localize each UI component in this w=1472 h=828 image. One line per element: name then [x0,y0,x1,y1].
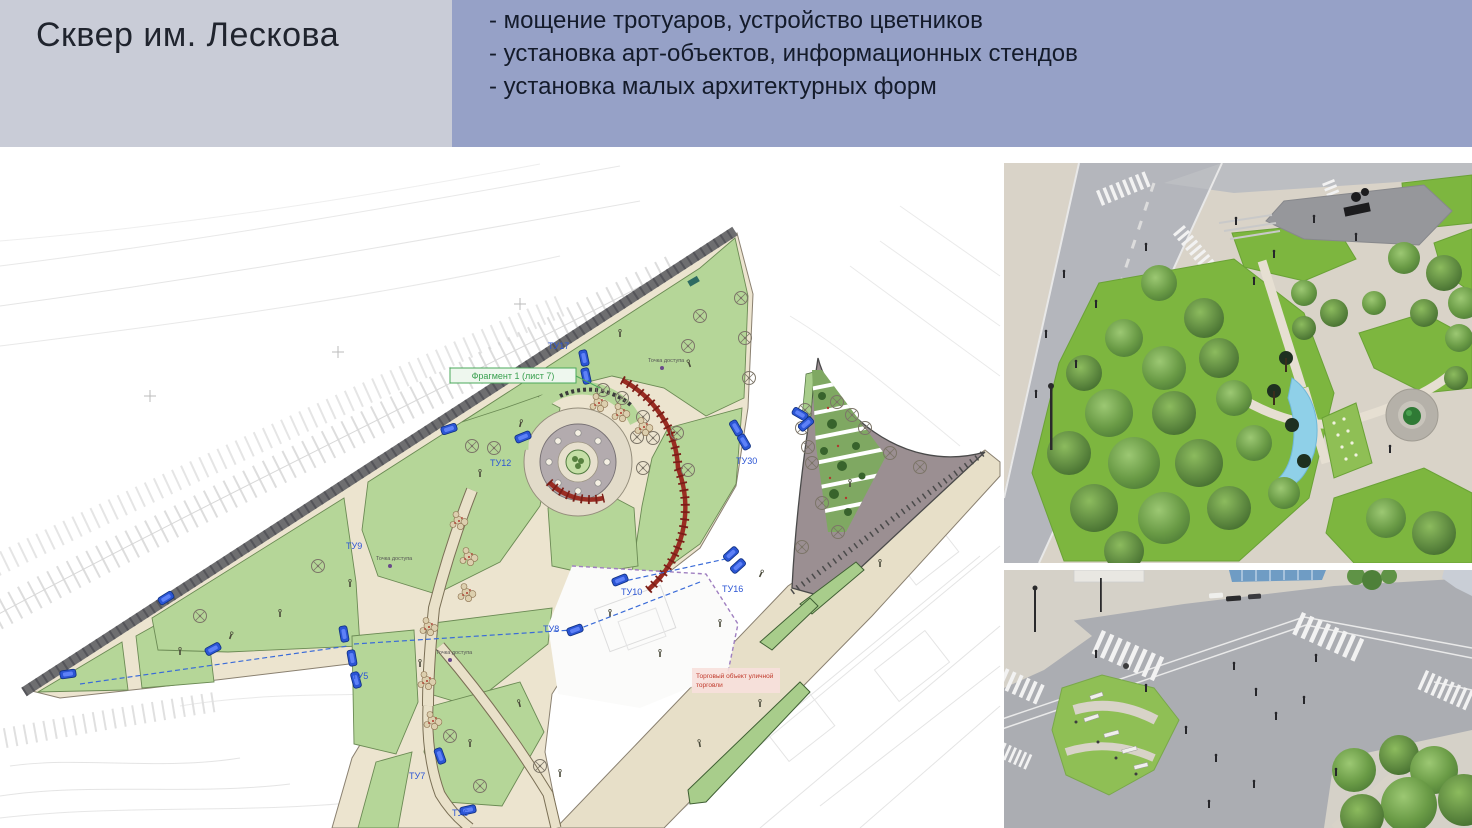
render-round-plaza [1386,389,1438,441]
svg-text:Торговый объект уличной: Торговый объект уличной [696,672,774,680]
svg-text:торговли: торговли [696,682,723,689]
work-item: - установка малых архитектурных форм [489,70,1078,103]
svg-text:Точка доступа: Точка доступа [376,556,413,562]
svg-text:Фрагмент 1 (лист 7): Фрагмент 1 (лист 7) [472,371,555,381]
tu-label: ТУ5 [352,671,368,681]
tu-label: ТУ30 [736,456,757,466]
tu-label: ТУ7 [409,771,425,781]
work-items-list: - мощение тротуаров, устройство цветнико… [489,4,1078,103]
tu-label: ТУ9 [346,541,362,551]
tu-label: ТУ6 [452,808,468,818]
work-item: - мощение тротуаров, устройство цветнико… [489,4,1078,37]
svg-text:Точка доступа: Точка доступа [436,650,473,656]
tu-label: ТУ12 [490,458,511,468]
tu-marker [729,558,746,575]
render-intersection [1004,570,1472,828]
red-note-label: Торговый объект уличной торговли [692,668,780,693]
work-item: - установка арт-объектов, информационных… [489,37,1078,70]
tu-label: ТУ10 [621,587,642,597]
tu-marker [60,669,77,679]
tu-marker [722,546,739,563]
page-title: Сквер им. Лескова [36,16,339,55]
svg-text:Точка доступа: Точка доступа [648,358,685,364]
tu-label: ТУ8 [543,624,559,634]
render-aerial-park [1004,163,1472,563]
tu-label: ТУ17 [548,341,569,351]
tu-label: ТУ16 [722,584,743,594]
master-plan: ТУ17 ТУ12 ТУ30 ТУ9 ТУ16 ТУ10 ТУ8 ТУ5 ТУ7… [0,146,1005,828]
